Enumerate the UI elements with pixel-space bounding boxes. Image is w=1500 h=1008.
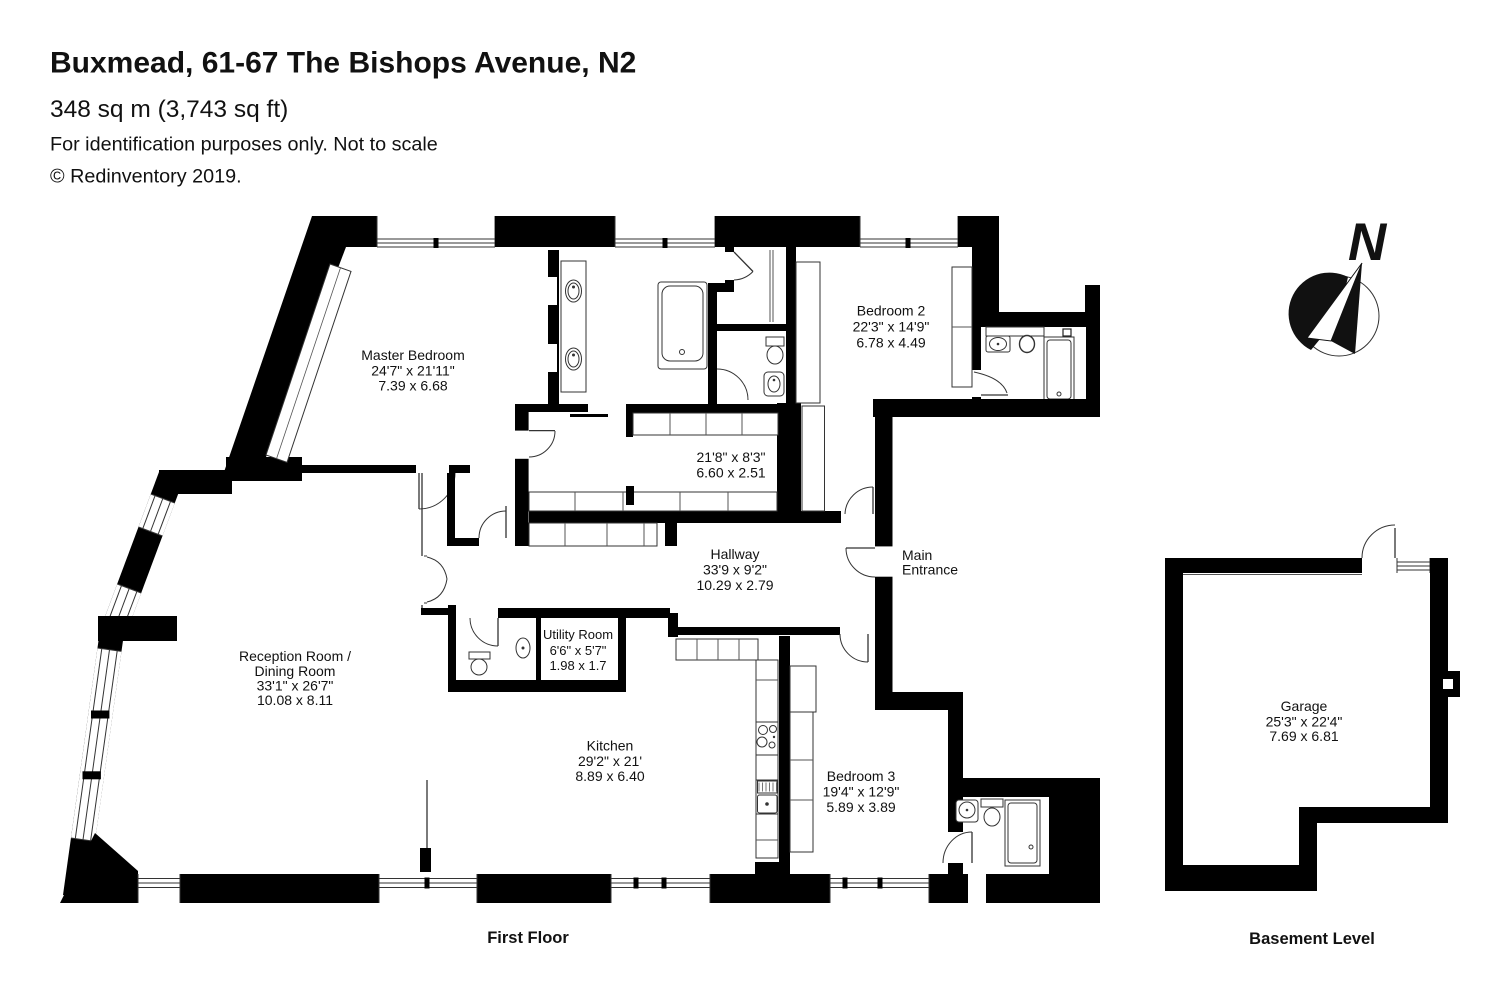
svg-text:Hallway: Hallway (710, 546, 759, 562)
svg-text:5.89 x 3.89: 5.89 x 3.89 (826, 799, 895, 815)
svg-text:Buxmead, 61-67 The Bishops Ave: Buxmead, 61-67 The Bishops Avenue, N2 (50, 47, 636, 80)
svg-text:6'6" x 5'7": 6'6" x 5'7" (550, 643, 607, 658)
svg-text:© Redinventory 2019.: © Redinventory 2019. (50, 166, 242, 188)
svg-text:Kitchen: Kitchen (587, 738, 634, 754)
svg-text:19'4" x 12'9": 19'4" x 12'9" (823, 784, 900, 800)
svg-text:Entrance: Entrance (902, 562, 958, 578)
svg-text:Utility Room: Utility Room (543, 627, 613, 642)
svg-text:Bedroom 2: Bedroom 2 (857, 303, 926, 319)
svg-text:6.78 x 4.49: 6.78 x 4.49 (856, 335, 925, 351)
svg-text:7.69 x 6.81: 7.69 x 6.81 (1269, 728, 1338, 744)
svg-text:For identification purposes on: For identification purposes only. Not to… (50, 134, 438, 156)
svg-text:22'3" x 14'9": 22'3" x 14'9" (853, 319, 930, 335)
svg-text:348 sq m (3,743 sq ft): 348 sq m (3,743 sq ft) (50, 96, 288, 123)
svg-text:Bedroom 3: Bedroom 3 (827, 768, 896, 784)
svg-text:24'7" x 21'11": 24'7" x 21'11" (371, 363, 455, 379)
svg-text:Garage: Garage (1281, 698, 1328, 714)
svg-text:10.29 x 2.79: 10.29 x 2.79 (696, 577, 773, 593)
svg-text:Reception Room /: Reception Room / (239, 648, 351, 664)
svg-text:6.60 x 2.51: 6.60 x 2.51 (696, 465, 765, 481)
svg-text:29'2" x 21': 29'2" x 21' (578, 753, 642, 769)
svg-text:N: N (1348, 213, 1388, 272)
svg-text:Master Bedroom: Master Bedroom (361, 347, 464, 363)
svg-text:21'8" x 8'3": 21'8" x 8'3" (697, 449, 766, 465)
svg-text:Basement Level: Basement Level (1249, 930, 1375, 948)
svg-text:8.89 x 6.40: 8.89 x 6.40 (575, 768, 644, 784)
svg-text:7.39 x 6.68: 7.39 x 6.68 (378, 378, 447, 394)
svg-text:10.08 x 8.11: 10.08 x 8.11 (257, 692, 333, 708)
svg-text:1.98 x 1.7: 1.98 x 1.7 (549, 658, 606, 673)
svg-text:33'9 x 9'2": 33'9 x 9'2" (703, 562, 767, 578)
svg-text:First Floor: First Floor (487, 929, 569, 947)
